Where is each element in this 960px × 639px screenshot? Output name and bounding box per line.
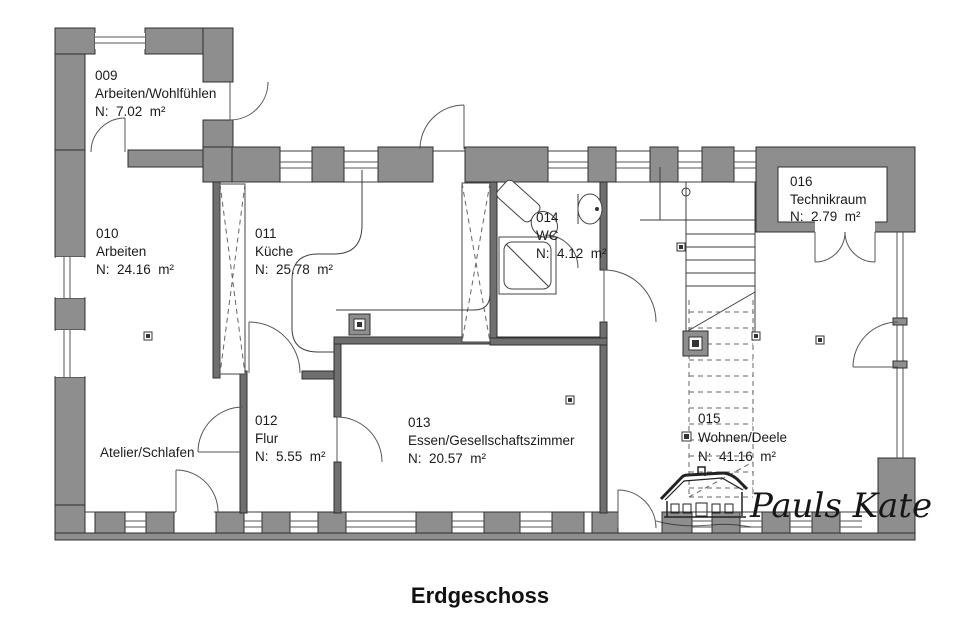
annotation-atelier: Atelier/Schlafen <box>100 445 195 460</box>
kitchen-fixtures <box>292 170 490 352</box>
room-id: 015 <box>698 411 721 426</box>
room-name: WC <box>536 228 559 243</box>
room-area: N: 2.79 m² <box>790 209 861 224</box>
wall-wc-left <box>490 182 497 345</box>
room-area: N: 25.78 m² <box>255 262 334 277</box>
wall-mid-right-lower <box>600 322 607 513</box>
room-area: N: 4.12 m² <box>536 246 607 261</box>
room-label-011: 011 Küche N: 25.78 m² <box>255 226 334 277</box>
brand-logo-text: Pauls Kate <box>749 486 932 526</box>
wall-flur-left <box>240 371 247 513</box>
wall-013-left-upper <box>334 344 341 417</box>
room-label-010: 010 Arbeiten N: 24.16 m² <box>96 226 175 277</box>
top-wall-pillars <box>203 147 734 182</box>
room-name: Arbeiten <box>96 244 146 259</box>
room-id: 012 <box>255 413 278 428</box>
wall-010-011 <box>213 182 220 378</box>
door-wc <box>604 270 656 322</box>
room-area: N: 5.55 m² <box>255 449 326 464</box>
stairs-solid-steps <box>640 167 755 332</box>
room-id: 014 <box>536 210 559 225</box>
room-area: N: 41.16 m² <box>698 449 777 464</box>
room-label-015: 015 Wohnen/Deele N: 41.16 m² <box>698 411 787 464</box>
room-id: 011 <box>255 226 277 241</box>
sink-icon <box>578 194 602 224</box>
room-area: N: 7.02 m² <box>95 104 166 119</box>
door-facade-right <box>853 322 898 367</box>
wall-009-right-lower <box>203 120 233 151</box>
room-name: Essen/Gesellschaftszimmer <box>408 433 575 448</box>
wall-left-pier <box>55 298 85 330</box>
door-009-to-010 <box>91 118 125 152</box>
door-flur-atelier <box>198 407 243 452</box>
wall-009-top-left <box>55 28 95 54</box>
floor-plan-page: 009 Arbeiten/Wohlfühlen N: 7.02 m² 010 A… <box>0 0 960 639</box>
room-label-012: 012 Flur N: 5.55 m² <box>255 413 326 464</box>
wall-009-right-upper <box>203 28 233 82</box>
room-area: N: 20.57 m² <box>408 451 487 466</box>
door-009-right <box>230 82 268 120</box>
room-name: Arbeiten/Wohlfühlen <box>95 86 216 101</box>
glass-facade-right <box>897 232 903 458</box>
facade-mullion-upper <box>893 318 907 325</box>
built-in-wardrobes <box>220 183 490 374</box>
room-name: Technikraum <box>790 192 867 207</box>
wall-wc-bottom <box>490 338 607 345</box>
room-label-009: 009 Arbeiten/Wohlfühlen N: 7.02 m² <box>95 68 216 119</box>
door-016-double <box>815 232 875 262</box>
page-title: Erdgeschoss <box>411 583 549 608</box>
floor-plan-drawing: 009 Arbeiten/Wohlfühlen N: 7.02 m² 010 A… <box>0 0 960 639</box>
room-name: Wohnen/Deele <box>698 430 787 445</box>
room-name: Küche <box>255 244 293 259</box>
wall-013-left-lower <box>334 462 341 513</box>
wall-009-010 <box>128 150 213 167</box>
room-id: 016 <box>790 174 813 189</box>
wall-left-upper <box>55 150 85 257</box>
room-id: 010 <box>96 226 119 241</box>
room-id: 013 <box>408 415 431 430</box>
door-terrace-left <box>176 470 218 512</box>
door-main-entrance <box>420 105 464 149</box>
room-name: Flur <box>255 431 279 446</box>
column-stairs-icon <box>683 331 708 356</box>
room-area: N: 24.16 m² <box>96 262 175 277</box>
room-label-013: 013 Essen/Gesellschaftszimmer N: 20.57 m… <box>408 415 575 466</box>
bottom-wall-base-strip <box>55 533 915 540</box>
shower-icon <box>499 235 578 294</box>
door-flur-essen <box>337 417 382 462</box>
room-id: 009 <box>95 68 118 83</box>
column-kitchen-icon <box>349 314 370 335</box>
door-terrace-015 <box>618 490 656 528</box>
